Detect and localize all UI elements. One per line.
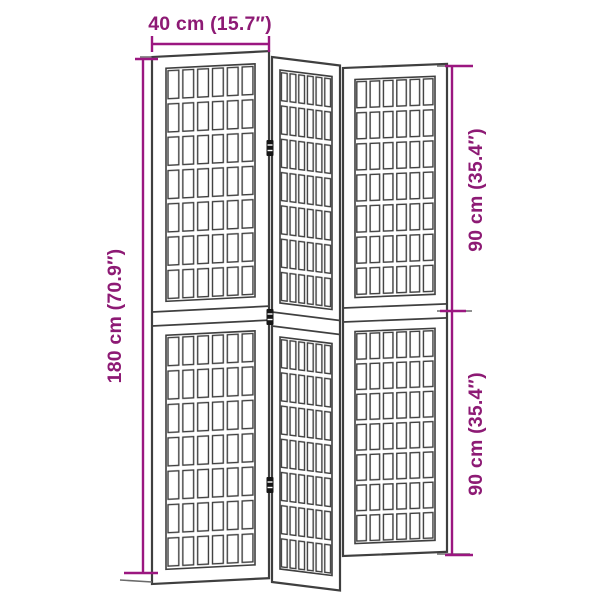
dimension-height-total-label: 180 cm (70.9″) [104, 249, 126, 384]
panel-middle-upper-grid [280, 70, 332, 310]
divider-panel-left [152, 51, 269, 584]
hinge-bottom [267, 477, 274, 493]
dimension-height-lower-label: 90 cm (35.4″) [465, 372, 487, 496]
panel-left-upper-grid [166, 64, 255, 301]
panel-right-upper-grid [355, 76, 435, 297]
dimension-height-lower: 90 cm (35.4″) [445, 311, 487, 555]
dimension-width-label: 40 cm (15.7″) [148, 13, 272, 35]
room-divider-drawing: 40 cm (15.7″) 180 cm (70.9″) 90 cm (35.4… [0, 0, 600, 600]
extension-line-bottom-left [120, 580, 152, 582]
dimension-height-upper-label: 90 cm (35.4″) [465, 128, 487, 252]
divider-panel-middle [272, 57, 340, 591]
hinge-top [267, 140, 274, 156]
dimension-width: 40 cm (15.7″) [148, 13, 272, 52]
divider-panel-right [343, 64, 447, 556]
panel-middle-lower-grid [280, 337, 332, 576]
hinge-middle [267, 309, 274, 325]
product-dimension-diagram: 40 cm (15.7″) 180 cm (70.9″) 90 cm (35.4… [0, 0, 600, 600]
dimension-height-total: 180 cm (70.9″) [104, 59, 158, 573]
panel-left-lower-grid [166, 331, 255, 569]
panel-right-lower-grid [355, 328, 435, 543]
divider-panels [120, 51, 472, 590]
